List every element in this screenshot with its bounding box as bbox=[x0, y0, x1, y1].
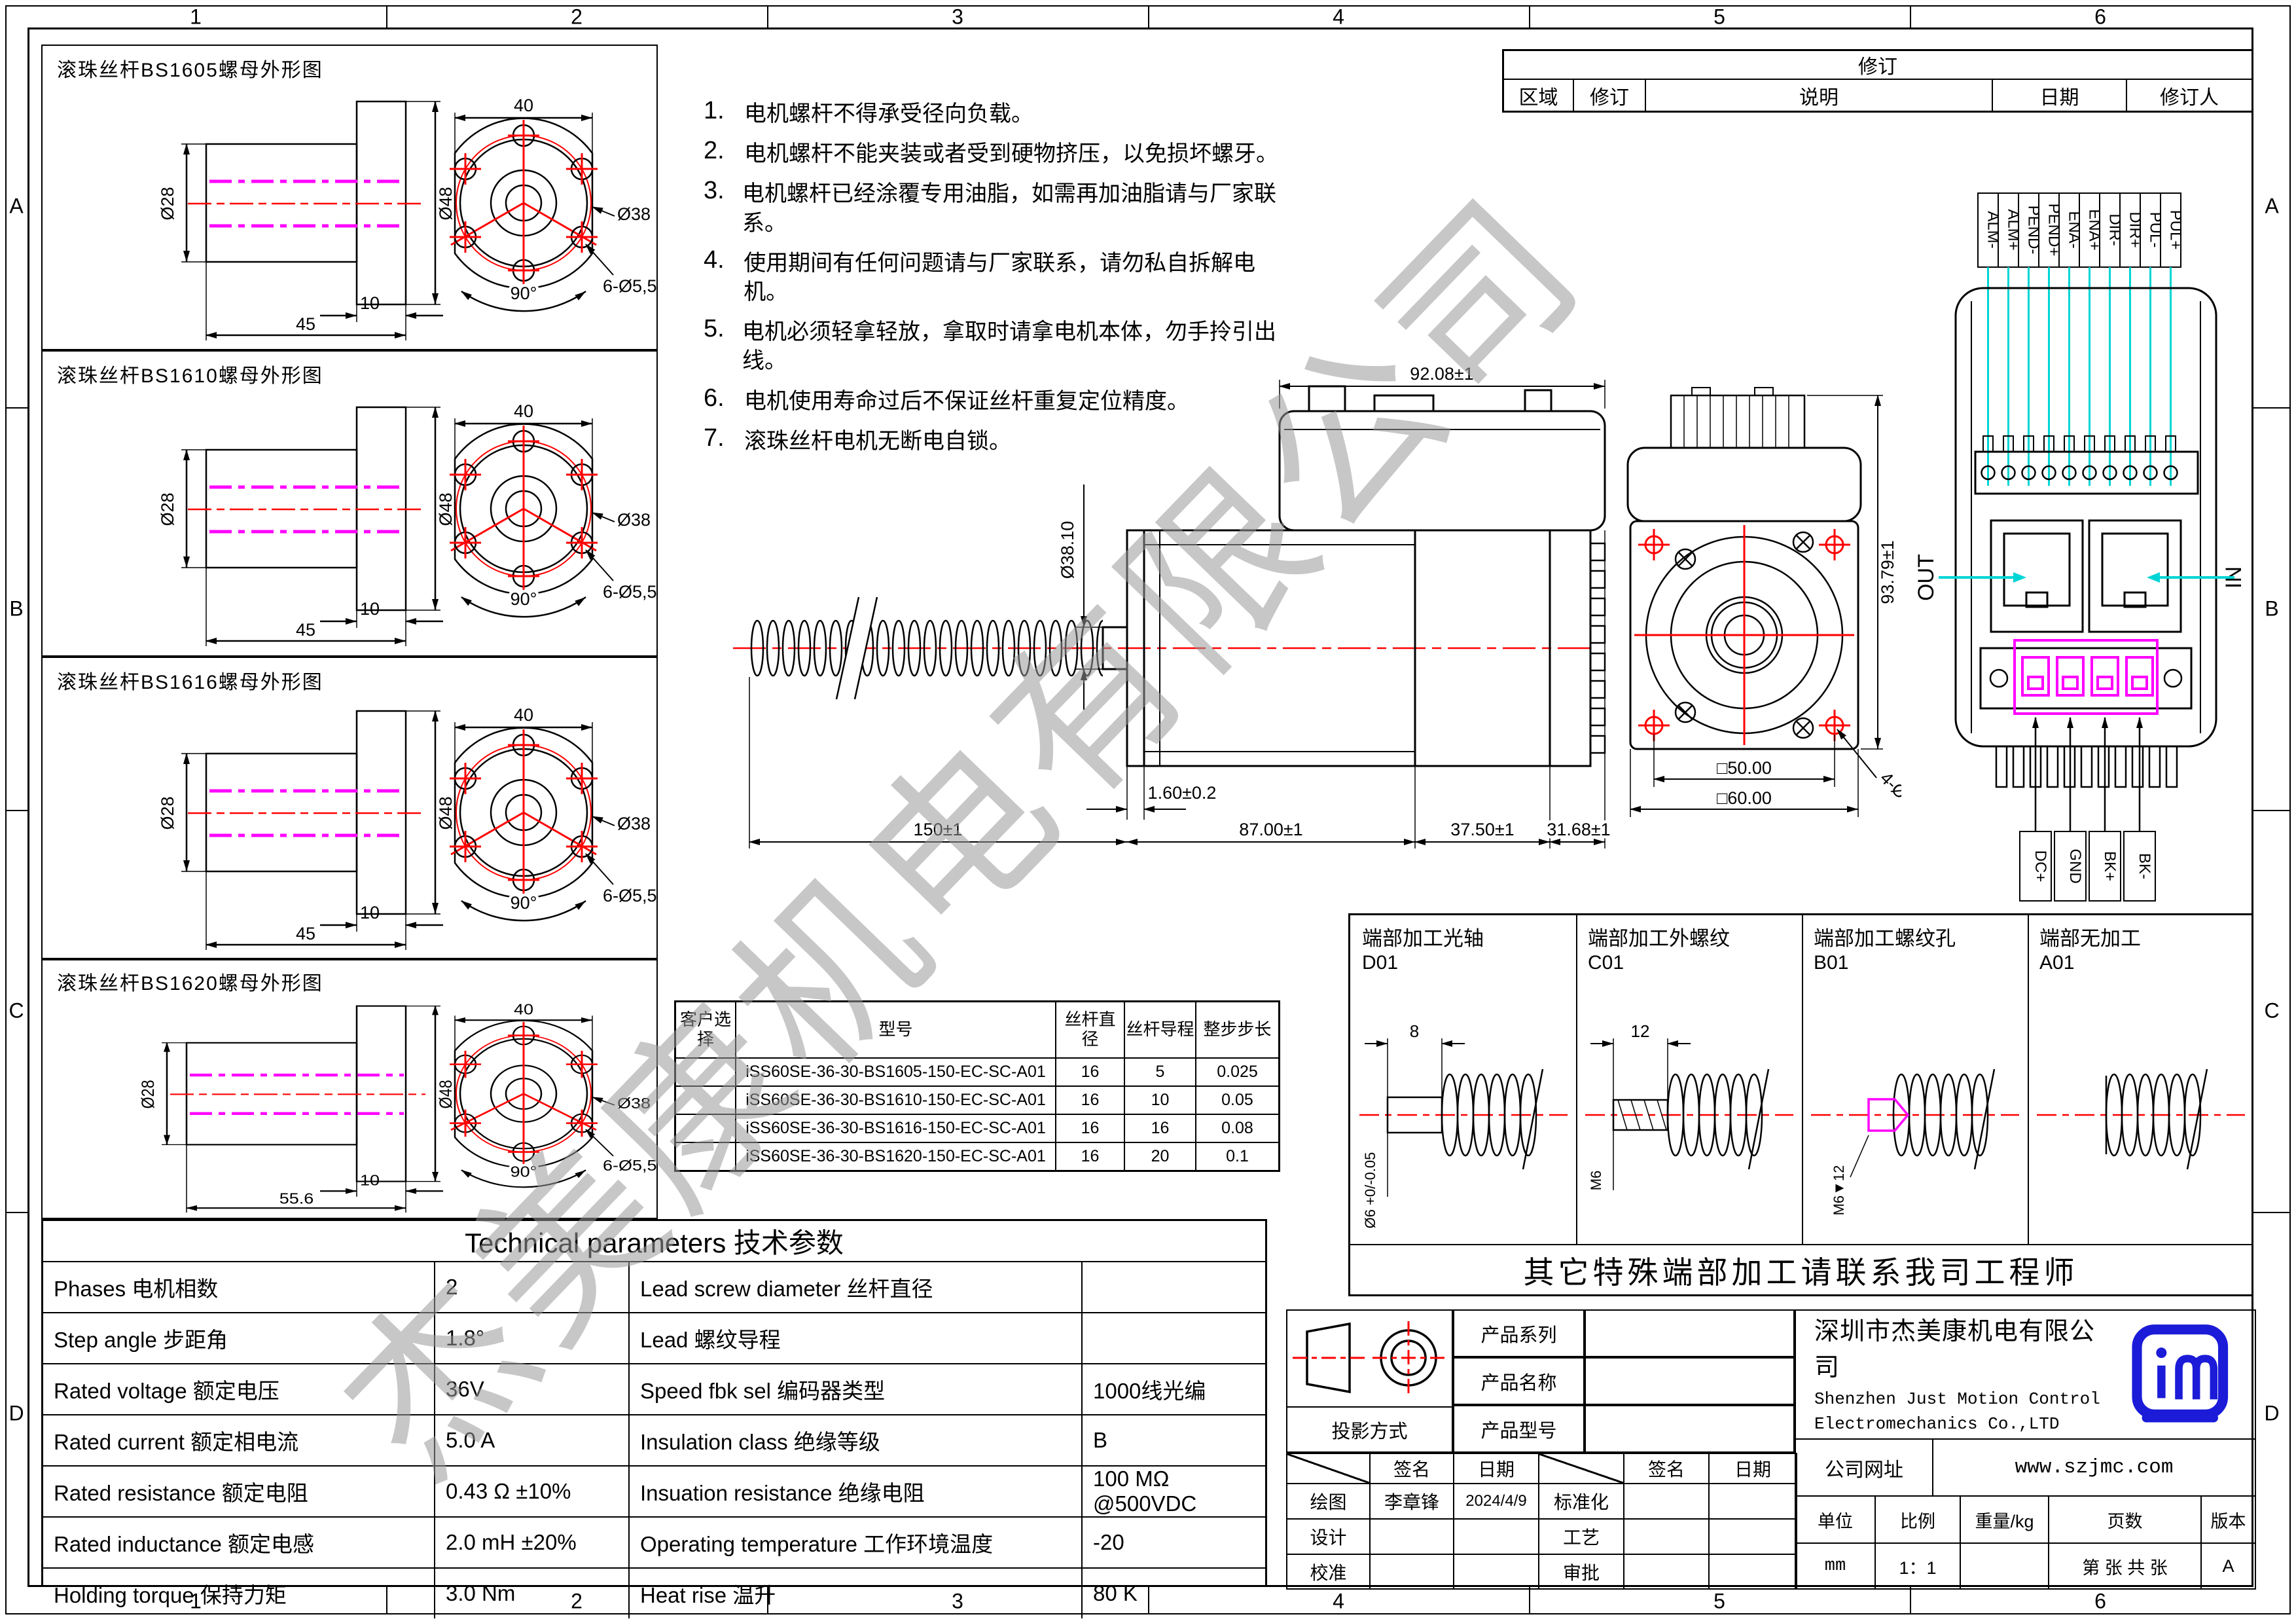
projection-box: 投影方式 bbox=[1286, 1309, 1453, 1453]
param-label: Holding torque 保持力矩 bbox=[43, 1567, 434, 1618]
date-header: 日期 bbox=[1453, 1454, 1538, 1483]
svg-text:40: 40 bbox=[514, 1001, 533, 1018]
param-label: Operating temperature 工作环境温度 bbox=[628, 1516, 1081, 1567]
role-date: 2024/4/9 bbox=[1453, 1483, 1538, 1518]
param-value: 3.0 Nm bbox=[434, 1567, 628, 1618]
zone-col-4-bottom: 4 bbox=[1333, 1590, 1344, 1614]
end-option-code: C01 bbox=[1588, 952, 1624, 974]
dimensions bbox=[749, 380, 1605, 848]
cell-lead: 16 bbox=[1124, 1114, 1195, 1142]
svg-text:M6: M6 bbox=[1588, 1171, 1604, 1191]
revision-title: 修订 bbox=[1504, 51, 2251, 79]
svg-text:10: 10 bbox=[360, 903, 380, 922]
dimension-labels: 92.08±1 Ø38.10 1.60±0.2 150±1 87.00±1 37… bbox=[914, 367, 1610, 839]
param-label: Phases 电机相数 bbox=[43, 1261, 434, 1312]
end-option-name: 端部无加工 bbox=[2039, 922, 2141, 951]
driver-hat bbox=[1628, 448, 1861, 521]
pin-label: PUL+ bbox=[2167, 210, 2185, 250]
scale-value: 1：1 bbox=[1874, 1542, 1960, 1588]
role-date bbox=[1453, 1518, 1538, 1554]
pin-label: DIR- bbox=[2106, 213, 2124, 246]
power-pin-label: GND bbox=[2066, 848, 2084, 883]
role-sign bbox=[1369, 1518, 1453, 1554]
signal-pin-labels: ALM- ALM+ PEND- PEND+ ENA- ENA+ DIR- DIR… bbox=[1978, 193, 2185, 267]
param-label: Heat rise 温升 bbox=[628, 1567, 1081, 1618]
role-sign bbox=[1623, 1554, 1708, 1588]
svg-text:37.50±1: 37.50±1 bbox=[1450, 820, 1514, 839]
zone-row-d-left: D bbox=[9, 1402, 24, 1426]
nut-panel-bs1620: 滚珠丝杆BS1620螺母外形图 bbox=[41, 959, 658, 1219]
zone-col-5-top: 5 bbox=[1713, 5, 1725, 29]
zone-row-d-right: D bbox=[2264, 1402, 2279, 1426]
pin-label: PUL- bbox=[2147, 212, 2164, 248]
cell-step: 0.08 bbox=[1195, 1114, 1278, 1142]
svg-text:150±1: 150±1 bbox=[914, 820, 963, 839]
model-selection-table: 客户选择 型号 丝杆直径 丝杆导程 整步步长 iSS60SE-36-30-BS1… bbox=[674, 1000, 1280, 1172]
nut-side-view bbox=[181, 101, 443, 340]
role-label: 工艺 bbox=[1538, 1518, 1623, 1554]
param-value: -20 bbox=[1081, 1516, 1265, 1567]
product-model-value bbox=[1585, 1405, 1795, 1453]
end-option-name: 端部加工外螺纹 bbox=[1588, 922, 1730, 951]
svg-text:10: 10 bbox=[360, 599, 380, 619]
product-series-value bbox=[1585, 1309, 1795, 1357]
cell-dia: 16 bbox=[1055, 1085, 1124, 1114]
svg-text:Ø28: Ø28 bbox=[158, 187, 177, 220]
cell-select bbox=[676, 1085, 735, 1114]
cell-step: 0.025 bbox=[1195, 1057, 1278, 1085]
svg-text:40: 40 bbox=[514, 401, 533, 421]
version-value: A bbox=[2200, 1542, 2255, 1588]
svg-text:Ø48: Ø48 bbox=[436, 796, 456, 830]
svg-text:8: 8 bbox=[1410, 1021, 1419, 1041]
connector-rear-view: ALM- ALM+ PEND- PEND+ ENA- ENA+ DIR- DIR… bbox=[1918, 190, 2253, 903]
end-option-name: 端部加工螺纹孔 bbox=[1814, 922, 1956, 951]
cell-step: 0.05 bbox=[1195, 1085, 1278, 1114]
power-pin-leaders bbox=[2036, 718, 2140, 831]
param-value: 2 bbox=[434, 1261, 628, 1312]
date-header: 日期 bbox=[1708, 1454, 1796, 1483]
zone-row-c-left: C bbox=[9, 999, 24, 1023]
connector-bump bbox=[1525, 390, 1551, 411]
product-series-label: 产品系列 bbox=[1453, 1309, 1585, 1357]
note-number: 1. bbox=[704, 97, 744, 128]
revision-col-zone: 区域 bbox=[1504, 79, 1573, 111]
col-header: 丝杆直径 bbox=[1055, 1002, 1124, 1057]
cell-model: iSS60SE-36-30-BS1620-150-EC-SC-A01 bbox=[735, 1142, 1055, 1170]
panel-title: 滚珠丝杆BS1616螺母外形图 bbox=[57, 666, 323, 695]
revision-col-date: 日期 bbox=[1992, 79, 2126, 111]
dimension-labels: Ø28 Ø48 10 45 40 Ø38 6-Ø5,5 90° bbox=[158, 96, 656, 334]
housing-outline bbox=[1956, 288, 2216, 746]
pin-label: PEND- bbox=[2025, 206, 2043, 255]
cell-dia: 16 bbox=[1055, 1114, 1124, 1142]
param-value: 2.0 mH ±20% bbox=[434, 1516, 628, 1567]
cell-lead: 5 bbox=[1124, 1057, 1195, 1085]
jmc-logo bbox=[2126, 1322, 2231, 1427]
end-option-code: A01 bbox=[2039, 952, 2074, 974]
svg-text:1.60±0.2: 1.60±0.2 bbox=[1148, 783, 1217, 803]
col-header: 型号 bbox=[735, 1002, 1055, 1057]
param-label: Lead 螺纹导程 bbox=[628, 1312, 1081, 1363]
projection-symbol bbox=[1287, 1312, 1451, 1404]
end-option-a01 bbox=[2029, 981, 2252, 1243]
nut-panel-bs1605: 滚珠丝杆BS1605螺母外形图 bbox=[41, 45, 658, 350]
svg-text:90°: 90° bbox=[511, 1163, 537, 1180]
connector-bump bbox=[1374, 395, 1433, 411]
param-value bbox=[1081, 1261, 1265, 1312]
end-option-code: B01 bbox=[1814, 952, 1848, 974]
svg-text:6-Ø5,5: 6-Ø5,5 bbox=[603, 1158, 656, 1175]
param-label: Rated resistance 额定电阻 bbox=[43, 1465, 434, 1516]
zone-col-3-top: 3 bbox=[952, 5, 963, 29]
param-value: 80 K bbox=[1081, 1567, 1265, 1618]
zone-col-6-top: 6 bbox=[2094, 5, 2106, 29]
svg-text:Ø6 +0/-0.05: Ø6 +0/-0.05 bbox=[1362, 1152, 1378, 1229]
weight-value bbox=[1960, 1542, 2048, 1588]
panel-title: 滚珠丝杆BS1605螺母外形图 bbox=[57, 54, 323, 82]
svg-text:4-Ø5.00: 4-Ø5.00 bbox=[1876, 768, 1901, 827]
title-block: 投影方式 产品系列 产品名称 产品型号 签名 日期 签名 日期 绘图 李章锋 2… bbox=[1286, 1303, 2253, 1587]
nut-drawing: Ø28 Ø48 10 45 40 Ø38 6-Ø5,5 90° bbox=[43, 388, 656, 654]
center-cross bbox=[1634, 525, 1854, 745]
sign-header: 签名 bbox=[1623, 1454, 1708, 1483]
param-label: Rated voltage 额定电压 bbox=[43, 1363, 434, 1414]
lead-screw bbox=[749, 597, 1103, 699]
zone-row-a-left: A bbox=[9, 194, 23, 219]
signal-wires bbox=[1988, 267, 2171, 486]
role-sign bbox=[1623, 1518, 1708, 1554]
param-value: 1.8° bbox=[434, 1312, 628, 1363]
unit-label: 单位 bbox=[1796, 1497, 1874, 1542]
svg-text:10: 10 bbox=[360, 1172, 380, 1189]
svg-text:6-Ø5,5: 6-Ø5,5 bbox=[603, 276, 656, 296]
product-name-label: 产品名称 bbox=[1453, 1357, 1585, 1405]
nut-drawing: Ø28 Ø48 10 45 40 Ø38 6-Ø5,5 90° bbox=[43, 82, 656, 348]
role-date bbox=[1708, 1554, 1796, 1588]
pin-label: ALM- bbox=[1984, 211, 2002, 248]
svg-text:87.00±1: 87.00±1 bbox=[1239, 820, 1302, 839]
role-date bbox=[1708, 1518, 1796, 1554]
role-label: 设计 bbox=[1287, 1518, 1369, 1554]
svg-text:45: 45 bbox=[296, 620, 315, 640]
motor-front-view: 93.79±1 □50.00 □60.00 4-Ø5.00 bbox=[1587, 386, 1901, 838]
svg-text:Ø48: Ø48 bbox=[436, 187, 456, 220]
svg-text:Ø28: Ø28 bbox=[158, 492, 177, 526]
svg-text:Ø48: Ø48 bbox=[436, 492, 456, 526]
svg-text:Ø28: Ø28 bbox=[158, 796, 177, 830]
role-label: 审批 bbox=[1538, 1554, 1623, 1588]
revision-table: 修订 区域 修订 说明 日期 修订人 bbox=[1502, 49, 2253, 113]
zone-col-4-top: 4 bbox=[1333, 5, 1344, 29]
role-label: 标准化 bbox=[1538, 1483, 1623, 1518]
cell-dia: 16 bbox=[1055, 1057, 1124, 1085]
param-value bbox=[1081, 1312, 1265, 1363]
col-header: 客户选择 bbox=[676, 1002, 735, 1057]
company-name-cn: 深圳市杰美康机电有限公司 bbox=[1814, 1311, 2102, 1383]
param-label: Speed fbk sel 编码器类型 bbox=[628, 1363, 1081, 1414]
param-label: Lead screw diameter 丝杆直径 bbox=[628, 1261, 1081, 1312]
cell-lead: 10 bbox=[1124, 1085, 1195, 1114]
power-pin-label: DC+ bbox=[2032, 850, 2049, 883]
cell-select bbox=[676, 1114, 735, 1142]
nut-drawing: Ø28 Ø48 10 45 40 Ø38 6-Ø5,5 90° bbox=[43, 693, 656, 957]
revision-col-rev: 修订 bbox=[1573, 79, 1645, 111]
svg-text:45: 45 bbox=[296, 924, 315, 943]
note-text: 电机螺杆不能夹装或者受到硬物挤压，以免损坏螺牙。 bbox=[744, 137, 1278, 168]
col-header: 整步步长 bbox=[1195, 1002, 1278, 1057]
param-value: B bbox=[1081, 1414, 1265, 1465]
note-number: 3. bbox=[704, 177, 742, 237]
param-label: Insulation class 绝缘等级 bbox=[628, 1414, 1081, 1465]
assembly-side-view: 92.08±1 Ø38.10 1.60±0.2 150±1 87.00±1 37… bbox=[720, 367, 1610, 864]
svg-text:40: 40 bbox=[514, 705, 533, 725]
param-value: 100 MΩ @500VDC bbox=[1081, 1465, 1265, 1516]
svg-text:Ø38: Ø38 bbox=[617, 814, 651, 833]
col-header: 丝杆导程 bbox=[1124, 1002, 1195, 1057]
power-pin-label: BK- bbox=[2136, 853, 2153, 879]
power-pin-labels: DC+ GND BK+ BK- bbox=[2020, 831, 2155, 901]
role-sign: 李章锋 bbox=[1369, 1483, 1453, 1518]
svg-text:Ø38: Ø38 bbox=[617, 510, 651, 530]
param-value: 5.0 A bbox=[434, 1414, 628, 1465]
unit-value: mm bbox=[1796, 1542, 1874, 1588]
svg-text:12: 12 bbox=[1631, 1021, 1650, 1041]
svg-text:90°: 90° bbox=[511, 589, 537, 609]
cell-lead: 20 bbox=[1124, 1142, 1195, 1170]
company-name-en1: Shenzhen Just Motion Control bbox=[1814, 1389, 2102, 1409]
svg-text:□60.00: □60.00 bbox=[1717, 788, 1772, 808]
param-value: 0.43 Ω ±10% bbox=[434, 1465, 628, 1516]
pages-value: 第 张 共 张 bbox=[2048, 1542, 2200, 1588]
zone-col-1-top: 1 bbox=[190, 5, 202, 29]
panel-title: 滚珠丝杆BS1610螺母外形图 bbox=[57, 359, 323, 388]
svg-text:40: 40 bbox=[514, 96, 533, 115]
nut-panel-bs1610: 滚珠丝杆BS1610螺母外形图 bbox=[41, 350, 658, 657]
note-text: 电机螺杆不得承受径向负载。 bbox=[744, 97, 1033, 128]
cell-model: iSS60SE-36-30-BS1605-150-EC-SC-A01 bbox=[735, 1057, 1055, 1085]
end-option-code: D01 bbox=[1362, 952, 1398, 974]
company-name-en2: Electromechanics Co.,LTD bbox=[1814, 1414, 2102, 1434]
out-label: OUT bbox=[1918, 554, 1939, 601]
nut-panel-bs1616: 滚珠丝杆BS1616螺母外形图 bbox=[41, 657, 658, 959]
power-connector bbox=[2015, 640, 2157, 714]
svg-text:Ø38: Ø38 bbox=[617, 1095, 651, 1112]
svg-text:M6▼12: M6▼12 bbox=[1831, 1165, 1847, 1216]
cell-select bbox=[676, 1142, 735, 1170]
svg-text:55.6: 55.6 bbox=[279, 1190, 314, 1207]
pin-label: ALM+ bbox=[2005, 209, 2022, 250]
end-option-c01: 12 M6 bbox=[1577, 981, 1801, 1243]
pin-label: DIR+ bbox=[2126, 211, 2144, 247]
svg-text:90°: 90° bbox=[511, 283, 537, 303]
param-value: 1000线光编 bbox=[1081, 1363, 1265, 1414]
svg-text:10: 10 bbox=[360, 293, 380, 313]
role-sign bbox=[1623, 1483, 1708, 1518]
svg-text:Ø38: Ø38 bbox=[617, 204, 651, 224]
scale-label: 比例 bbox=[1874, 1497, 1960, 1542]
connector-bump bbox=[1309, 386, 1345, 411]
engineering-drawing-sheet: { "colors":{"centerline":"#ff0000","hidd… bbox=[0, 0, 2296, 1623]
role-date bbox=[1708, 1483, 1796, 1518]
technical-parameters-table: Technical parameters 技术参数 Phases 电机相数 2 … bbox=[41, 1219, 1267, 1587]
svg-text:Ø48: Ø48 bbox=[436, 1080, 456, 1108]
pin-label: PEND+ bbox=[2045, 204, 2063, 257]
end-option-b01: M6▼12 bbox=[1803, 981, 2026, 1243]
svg-text:Ø38.10: Ø38.10 bbox=[1058, 521, 1077, 579]
nut-drawing: Ø28 Ø48 10 55.6 40 Ø38 6-Ø5,5 90° bbox=[43, 992, 656, 1217]
cell-model: iSS60SE-36-30-BS1610-150-EC-SC-A01 bbox=[735, 1085, 1055, 1114]
bottom-fins bbox=[1996, 746, 2177, 787]
pin-label: ENA- bbox=[2066, 211, 2083, 248]
zone-col-5-bottom: 5 bbox=[1713, 1590, 1725, 1614]
role-sign bbox=[1369, 1554, 1453, 1588]
signature-grid: 签名 日期 签名 日期 绘图 李章锋 2024/4/9 标准化 设计 工艺 校准… bbox=[1286, 1453, 1797, 1590]
zone-row-b-right: B bbox=[2265, 597, 2278, 621]
sign-header: 签名 bbox=[1369, 1454, 1453, 1483]
note-text: 电机螺杆已经涂覆专用油脂，如需再加油脂请与厂家联系。 bbox=[742, 177, 1293, 237]
website-label: 公司网址 bbox=[1796, 1440, 1933, 1495]
pin-label: ENA+ bbox=[2086, 209, 2104, 250]
revision-col-author: 修订人 bbox=[2126, 79, 2251, 111]
website-value: www.szjmc.com bbox=[1933, 1440, 2255, 1495]
param-label: Rated inductance 额定电感 bbox=[43, 1516, 434, 1567]
version-label: 版本 bbox=[2200, 1497, 2255, 1542]
revision-col-desc: 说明 bbox=[1645, 79, 1992, 111]
cell-step: 0.1 bbox=[1195, 1142, 1278, 1170]
cell-select bbox=[676, 1057, 735, 1085]
zone-col-2-top: 2 bbox=[571, 5, 583, 29]
svg-text:93.79±1: 93.79±1 bbox=[1878, 540, 1897, 604]
svg-text:Ø28: Ø28 bbox=[138, 1080, 158, 1108]
zone-row-a-right: A bbox=[2265, 194, 2278, 219]
svg-text:90°: 90° bbox=[511, 893, 537, 913]
end-option-d01: 8 Ø6 +0/-0.05 bbox=[1352, 981, 1575, 1243]
end-option-name: 端部加工光轴 bbox=[1362, 922, 1484, 951]
weight-label: 重量/kg bbox=[1960, 1497, 2048, 1542]
end-machining-note: 其它特殊端部加工请联系我司工程师 bbox=[1350, 1244, 2251, 1294]
zone-row-c-right: C bbox=[2264, 999, 2279, 1023]
role-date bbox=[1453, 1554, 1538, 1588]
cell-model: iSS60SE-36-30-BS1616-150-EC-SC-A01 bbox=[735, 1114, 1055, 1142]
end-machining-panel: 端部加工光轴 D01 端部加工外螺纹 C01 端部加工螺纹孔 B01 端部无加工… bbox=[1348, 913, 2253, 1296]
company-block: 深圳市杰美康机电有限公司 Shenzhen Just Motion Contro… bbox=[1795, 1309, 2256, 1590]
product-model-label: 产品型号 bbox=[1453, 1405, 1585, 1453]
param-label: Insuation resistance 绝缘电阻 bbox=[628, 1465, 1081, 1516]
role-label: 校准 bbox=[1287, 1554, 1369, 1588]
param-label: Step angle 步距角 bbox=[43, 1312, 434, 1363]
cell-dia: 16 bbox=[1055, 1142, 1124, 1170]
note-number: 4. bbox=[704, 246, 744, 306]
pages-label: 页数 bbox=[2048, 1497, 2200, 1542]
note-number: 2. bbox=[704, 137, 744, 168]
product-name-value bbox=[1585, 1357, 1795, 1405]
svg-text:□50.00: □50.00 bbox=[1717, 758, 1772, 778]
terminal-block-top bbox=[1671, 395, 1804, 448]
param-value: 36V bbox=[434, 1363, 628, 1414]
dimensions bbox=[1630, 395, 1883, 817]
power-pin-label: BK+ bbox=[2101, 851, 2119, 881]
projection-label: 投影方式 bbox=[1287, 1406, 1452, 1451]
corner-diag bbox=[1287, 1454, 1369, 1483]
svg-text:92.08±1: 92.08±1 bbox=[1410, 367, 1473, 384]
note-text: 使用期间有任何问题请与厂家联系，请勿私自拆解电机。 bbox=[744, 246, 1293, 306]
role-label: 绘图 bbox=[1287, 1483, 1369, 1518]
nut-front-view bbox=[450, 113, 615, 311]
zone-row-b-left: B bbox=[9, 597, 23, 621]
param-label: Rated current 额定相电流 bbox=[43, 1414, 434, 1465]
corner-diag bbox=[1538, 1454, 1623, 1483]
svg-text:45: 45 bbox=[296, 314, 315, 334]
svg-text:6-Ø5,5: 6-Ø5,5 bbox=[603, 886, 656, 905]
zone-col-6-bottom: 6 bbox=[2094, 1590, 2106, 1614]
tech-table-title: Technical parameters 技术参数 bbox=[43, 1221, 1265, 1261]
power-plate bbox=[1981, 648, 2191, 708]
svg-text:6-Ø5,5: 6-Ø5,5 bbox=[603, 582, 656, 602]
